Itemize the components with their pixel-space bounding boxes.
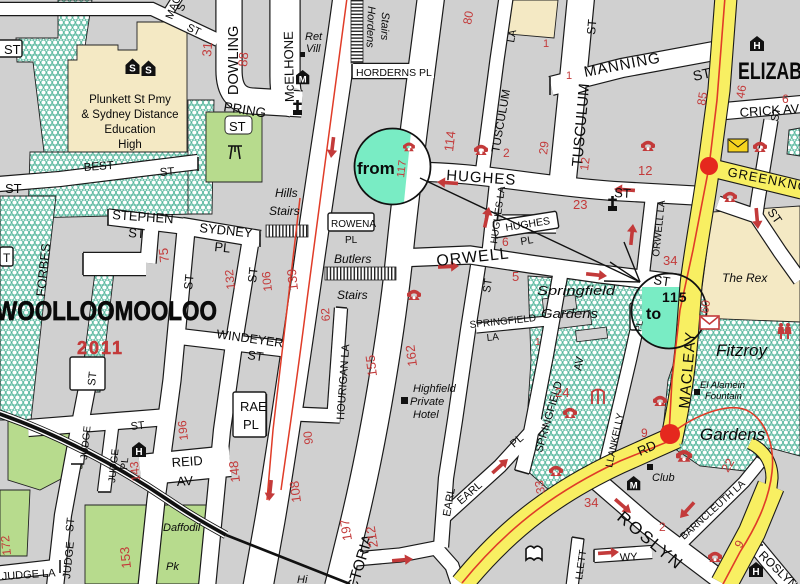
svg-text:ST: ST	[130, 420, 146, 433]
svg-text:McELHONE: McELHONE	[281, 31, 297, 102]
svg-text:108: 108	[286, 480, 304, 503]
svg-text:ST: ST	[5, 181, 22, 196]
svg-text:162: 162	[402, 344, 420, 367]
svg-text:El Alamein: El Alamein	[700, 380, 745, 391]
svg-text:ST: ST	[653, 272, 672, 289]
svg-text:80: 80	[460, 10, 476, 26]
svg-text:172: 172	[0, 534, 14, 556]
svg-text:Stairs: Stairs	[337, 288, 368, 302]
svg-text:Hotel: Hotel	[413, 409, 439, 421]
svg-text:Stairs: Stairs	[378, 12, 391, 41]
svg-text:ST: ST	[584, 18, 599, 35]
svg-text:ST: ST	[181, 273, 197, 290]
svg-text:Fitzroy: Fitzroy	[716, 341, 769, 360]
svg-text:33: 33	[532, 479, 548, 495]
svg-text:Vill: Vill	[306, 43, 321, 55]
svg-text:PL: PL	[214, 239, 231, 256]
svg-text:139: 139	[284, 268, 301, 291]
svg-text:BEST: BEST	[83, 160, 114, 174]
svg-text:6: 6	[782, 92, 789, 106]
svg-text:Hi: Hi	[297, 574, 308, 584]
svg-text:Gardens: Gardens	[541, 306, 599, 321]
svg-text:196: 196	[175, 419, 191, 441]
svg-text:ROWENA: ROWENA	[331, 219, 376, 230]
svg-text:Hordens: Hordens	[364, 6, 377, 48]
svg-text:Daffodil: Daffodil	[163, 522, 201, 534]
svg-text:PL: PL	[633, 320, 645, 333]
svg-text:85: 85	[694, 91, 710, 107]
svg-text:ST: ST	[4, 42, 21, 57]
svg-text:Springfield: Springfield	[537, 283, 616, 298]
svg-text:ST: ST	[86, 371, 99, 387]
svg-text:Gardens: Gardens	[700, 425, 766, 444]
svg-text:RAE: RAE	[240, 399, 267, 414]
svg-text:75: 75	[156, 247, 172, 263]
svg-text:PL: PL	[243, 417, 259, 432]
svg-text:ST: ST	[247, 348, 265, 364]
svg-text:ST: ST	[64, 517, 77, 533]
svg-text:LA: LA	[505, 29, 519, 44]
svg-text:23: 23	[573, 197, 587, 212]
svg-text:31: 31	[199, 42, 215, 58]
svg-text:114: 114	[441, 130, 458, 152]
svg-text:153: 153	[117, 546, 134, 569]
svg-text:ST: ST	[481, 278, 495, 294]
svg-text:ST: ST	[159, 166, 175, 179]
svg-text:2: 2	[503, 146, 510, 160]
svg-text:34: 34	[584, 495, 598, 510]
svg-text:5: 5	[512, 269, 519, 284]
svg-text:12: 12	[638, 163, 652, 178]
svg-text:155: 155	[362, 354, 380, 377]
svg-text:AV: AV	[176, 473, 194, 489]
svg-text:115: 115	[662, 289, 688, 305]
svg-text:Plunkett St Pmy: Plunkett St Pmy	[89, 94, 171, 106]
svg-text:Hills: Hills	[275, 186, 298, 200]
svg-text:ST: ST	[614, 185, 631, 201]
svg-text:1: 1	[543, 38, 549, 50]
svg-text:High: High	[118, 139, 142, 151]
svg-text:from: from	[357, 159, 395, 178]
svg-text:1: 1	[566, 70, 572, 82]
svg-text:88: 88	[235, 52, 251, 68]
svg-text:Stairs: Stairs	[269, 204, 300, 218]
svg-text:T: T	[3, 251, 11, 265]
svg-text:Ret: Ret	[305, 31, 323, 43]
svg-text:ST: ST	[769, 106, 783, 122]
svg-text:Pk: Pk	[166, 561, 179, 573]
svg-text:Highfield: Highfield	[413, 383, 457, 395]
svg-text:ST: ST	[128, 225, 146, 241]
svg-text:143: 143	[127, 460, 143, 482]
svg-text:1: 1	[535, 337, 541, 348]
svg-text:148: 148	[226, 460, 243, 483]
svg-text:132: 132	[222, 268, 238, 290]
svg-text:2011: 2011	[77, 338, 124, 358]
svg-text:PL: PL	[520, 234, 535, 248]
svg-text:90: 90	[300, 430, 316, 445]
svg-text:12: 12	[577, 156, 593, 171]
svg-text:34: 34	[663, 253, 677, 268]
svg-text:to: to	[646, 306, 661, 323]
svg-text:24: 24	[555, 385, 569, 400]
svg-text:62: 62	[318, 307, 333, 322]
svg-text:Club: Club	[652, 472, 675, 484]
svg-text:Education: Education	[104, 124, 155, 136]
svg-text:Butlers: Butlers	[334, 252, 371, 266]
svg-text:ELIZAB: ELIZAB	[738, 58, 800, 85]
svg-text:2: 2	[659, 520, 666, 534]
svg-text:REID: REID	[171, 453, 203, 470]
svg-text:WOOLLOOMOOLOO: WOOLLOOMOOLOO	[0, 296, 217, 326]
svg-text:6: 6	[502, 235, 509, 249]
svg-text:Private: Private	[410, 396, 444, 408]
svg-text:Fountain: Fountain	[705, 391, 742, 402]
svg-text:117: 117	[395, 159, 409, 178]
svg-text:LA: LA	[486, 332, 500, 344]
svg-text:& Sydney Distance: & Sydney Distance	[81, 109, 178, 121]
svg-text:PL: PL	[345, 235, 358, 246]
svg-text:9: 9	[641, 426, 648, 440]
svg-text:WY: WY	[620, 551, 639, 564]
svg-text:106: 106	[259, 270, 275, 292]
svg-text:46: 46	[733, 84, 749, 100]
svg-text:HORDERNS PL: HORDERNS PL	[356, 67, 432, 79]
svg-text:29: 29	[536, 140, 552, 155]
svg-text:The Rex: The Rex	[722, 271, 768, 285]
svg-text:60: 60	[697, 299, 713, 315]
svg-text:ST: ST	[229, 119, 246, 134]
